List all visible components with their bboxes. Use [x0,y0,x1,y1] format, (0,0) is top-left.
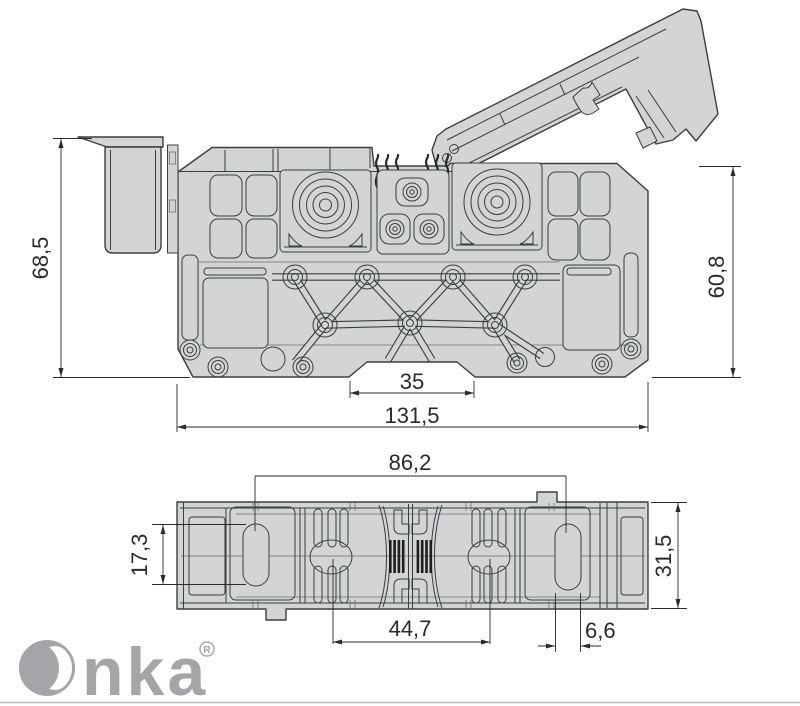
registered-mark: R [203,645,211,656]
dim-slot-width: 6,6 [585,618,616,643]
right-screw-terminal [452,163,542,250]
plan-view: 86,2 17,3 31,5 44,7 [127,450,687,652]
brand-logo: nka R [19,634,214,706]
logo-o-mark [19,640,75,696]
right-slot [624,253,638,337]
dim-slot-length: 17,3 [127,534,152,577]
left-screw-terminal [280,170,371,252]
dim-total-height: 68,5 [28,237,53,280]
marker-holder-block [78,137,178,253]
left-slot [182,255,198,340]
right-oval-slot [555,524,581,590]
technical-drawing: 68,5 60,8 35 131,5 [0,0,800,706]
dim-rail-notch-width: 35 [400,369,424,394]
right-thin-slot [567,268,611,275]
dim-body-depth: 31,5 [651,535,676,578]
logo-text: nka [82,634,208,706]
left-thin-slot [204,268,266,275]
dim-total-width: 131,5 [384,403,439,428]
dim-terminal-center-span: 44,7 [389,616,432,641]
side-view: 68,5 60,8 35 131,5 [28,9,741,432]
dim-slot-center-span: 86,2 [389,450,432,475]
drawing-page: 68,5 60,8 35 131,5 [0,0,800,706]
right-lower-pad [563,265,620,350]
left-lower-pad [203,278,268,348]
side-view-open-cover [432,9,718,177]
dim-right-height: 60,8 [704,256,729,299]
left-oval-slot [243,524,269,586]
center-panel [377,170,449,254]
cover-silhouette [432,9,718,177]
